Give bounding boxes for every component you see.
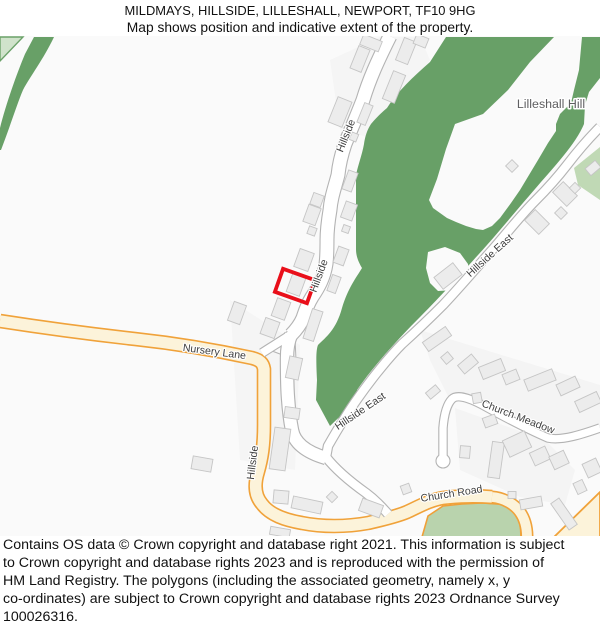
svg-text:Lilleshall Hill: Lilleshall Hill: [517, 97, 585, 111]
